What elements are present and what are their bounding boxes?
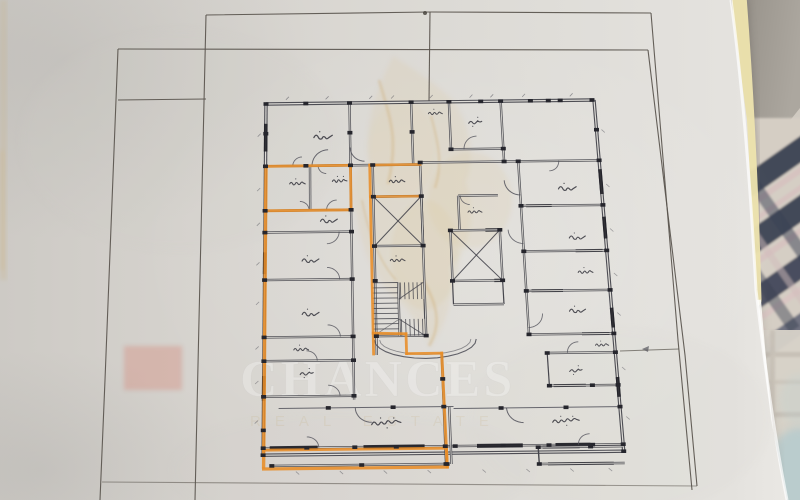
svg-text:CHANCES: CHANCES <box>240 351 515 408</box>
svg-text:REAL ESTATE: REAL ESTATE <box>250 413 503 430</box>
